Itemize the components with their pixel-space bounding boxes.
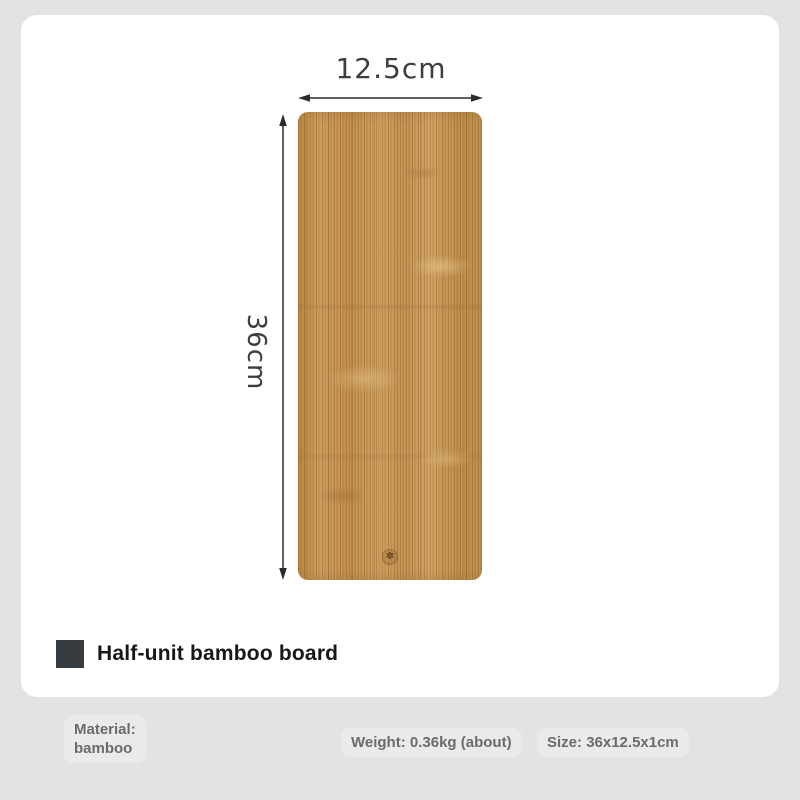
spec-weight-label: Weight:	[351, 734, 406, 751]
spec-weight: Weight: 0.36kg (about)	[341, 728, 522, 757]
spec-size-label: Size:	[547, 734, 582, 751]
brand-stamp-icon: ✽	[382, 549, 398, 565]
width-dimension-label: 12.5cm	[298, 52, 484, 85]
height-dimension-label: 36cm	[241, 314, 271, 391]
spec-weight-value: 0.36kg (about)	[410, 734, 512, 751]
title-bullet-icon	[56, 640, 84, 668]
spec-size-value: 36x12.5x1cm	[586, 734, 679, 751]
product-title-row: Half-unit bamboo board	[56, 640, 338, 668]
width-dimension-arrow	[297, 91, 484, 105]
height-dimension-arrow	[276, 113, 290, 581]
spec-size: Size: 36x12.5x1cm	[537, 728, 689, 757]
spec-material: Material: bamboo	[64, 715, 146, 763]
spec-material-value: bamboo	[74, 740, 132, 757]
spec-material-label: Material:	[74, 721, 136, 738]
bamboo-board-image: ✽	[298, 112, 482, 580]
product-title: Half-unit bamboo board	[97, 642, 338, 666]
